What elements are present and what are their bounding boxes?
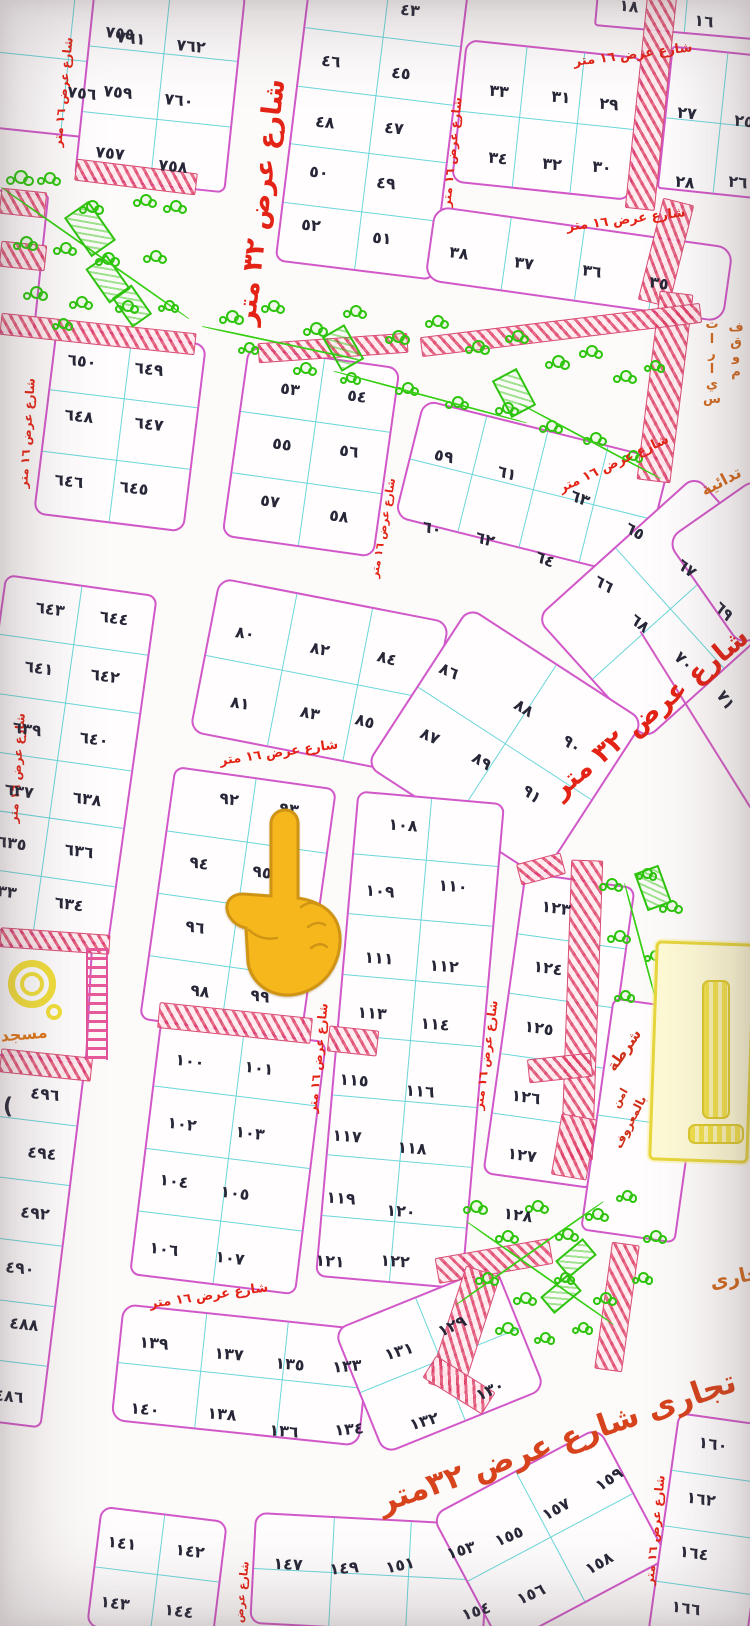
tree-icon xyxy=(480,345,490,355)
area-label: سيارات xyxy=(705,317,720,407)
tree-icon xyxy=(627,994,635,1002)
plot-number: ٥٥ xyxy=(271,433,293,455)
plot-number: ٧٦٠ xyxy=(163,89,194,111)
plot-number: ٥٧ xyxy=(259,490,281,512)
plot-number: ١١٧ xyxy=(332,1126,363,1147)
tree-icon xyxy=(38,291,48,301)
tree-icon xyxy=(534,1337,541,1344)
plot-number: ١١٥ xyxy=(339,1070,370,1091)
tree-icon xyxy=(37,177,45,185)
plot-number: ٦٢ xyxy=(473,527,497,551)
tree-icon xyxy=(608,1297,617,1306)
area-label: تجارى xyxy=(708,1258,750,1294)
plot-number: ١٤٠ xyxy=(130,1398,161,1419)
grid-line xyxy=(500,218,511,289)
plot-number: ١٨ xyxy=(618,0,639,16)
tree-icon xyxy=(585,1326,593,1334)
plot-number: ١٢١ xyxy=(315,1251,346,1272)
plot-number: ١٣٥ xyxy=(275,1353,306,1374)
tree-icon xyxy=(657,364,665,372)
pointing-hand-icon[interactable] xyxy=(225,806,347,1008)
subdivision-map: شارع عرض ١٦ مترشارع عرض ٣٢ مترشارع عرض ١… xyxy=(0,0,750,1626)
street-label: شارع عرض ١٦ متر xyxy=(16,378,38,489)
plot-number: ١٦٦ xyxy=(670,1597,702,1620)
plot-number: ٥٩ xyxy=(432,445,455,468)
tree-icon xyxy=(478,1205,488,1215)
plot-number: ١٤٢ xyxy=(174,1540,205,1562)
plot-number: ٦٣٦ xyxy=(63,840,95,863)
tree-icon xyxy=(52,177,61,186)
plot-number: ١٠٢ xyxy=(166,1113,197,1135)
plot-number: ١١٨ xyxy=(397,1138,428,1159)
plot-number: ٦٤٢ xyxy=(89,665,121,688)
plot-number: ٢٩ xyxy=(598,94,619,115)
tree-icon xyxy=(158,305,165,312)
yellow-building-hall xyxy=(702,980,730,1119)
plot-number: ٦٤٤ xyxy=(98,607,130,630)
tree-icon xyxy=(143,255,151,263)
plot-number: ١٦٤ xyxy=(678,1542,710,1565)
plot-number: ٤٩٠ xyxy=(4,1257,35,1279)
tree-icon xyxy=(628,375,637,384)
plot-number: ١٤٤ xyxy=(163,1600,194,1622)
grid-line xyxy=(460,111,635,130)
plot-number: ١٢٥ xyxy=(523,1017,555,1040)
plot-number: ١٦٠ xyxy=(697,1433,729,1456)
plot-number: ١١٤ xyxy=(420,1014,451,1035)
hatched-street xyxy=(327,1025,379,1056)
plot-number: ٧٦٢ xyxy=(175,35,206,57)
plot-number: ٤٨ xyxy=(314,112,335,133)
plot-number: ٧٥٩ xyxy=(102,81,133,103)
plot-number: ٤٣ xyxy=(399,0,420,20)
plot-number: ٧٥٦ xyxy=(66,82,97,104)
plot-number: ١٠٤ xyxy=(158,1170,189,1192)
grid-line xyxy=(664,1525,750,1539)
plot-number: ١٢٨ xyxy=(502,1204,534,1227)
grid-line xyxy=(0,692,139,714)
grid-line xyxy=(657,1581,750,1595)
tree-icon xyxy=(238,347,245,354)
tree-icon xyxy=(465,346,473,354)
plot-number: ١٠٧ xyxy=(214,1247,245,1269)
plot-number: ٧٥٨ xyxy=(157,155,188,177)
tree-icon xyxy=(614,883,623,892)
plot-number: ٦٣٨ xyxy=(71,788,103,811)
tree-icon xyxy=(594,350,603,359)
tree-icon xyxy=(219,316,227,324)
plot-number: ٦٣٣ xyxy=(0,880,18,903)
grid-line xyxy=(119,1362,364,1389)
tree-icon xyxy=(510,1327,519,1336)
plot-number: ١٢٦ xyxy=(510,1086,542,1109)
grid-line xyxy=(0,1174,69,1186)
plot-number: ٨١ xyxy=(229,692,251,714)
tree-icon xyxy=(148,199,157,208)
mosque-stairs xyxy=(86,948,108,1060)
plot-number: ٦٤٨ xyxy=(63,405,94,427)
plot-number: ٤٩٤ xyxy=(26,1142,57,1164)
plot-number: ١٢٢ xyxy=(380,1251,411,1272)
plot-number: ٤٩٢ xyxy=(19,1202,50,1224)
plot-number: ٩٦ xyxy=(184,916,206,938)
tree-icon xyxy=(65,322,73,330)
plot-number: ٦٣٧ xyxy=(3,780,35,803)
area-label: موقف xyxy=(729,320,744,380)
tree-icon xyxy=(308,367,317,376)
tree-icon xyxy=(572,1327,579,1334)
plot-number: ١١٦ xyxy=(405,1081,436,1102)
plot-number: ٦٣٥ xyxy=(0,832,28,855)
plot-number: ٢٧ xyxy=(676,103,697,124)
plot-number: ٥١ xyxy=(371,228,392,249)
plot-number: ٤٦ xyxy=(320,51,341,72)
tree-icon xyxy=(570,1233,579,1242)
tree-icon xyxy=(425,320,433,328)
plot-number: ٩٨ xyxy=(189,980,211,1002)
plot-number: ٣٢ xyxy=(541,154,562,175)
plot-number: ١٣٧ xyxy=(214,1343,245,1364)
plot-number: ٦٤٥ xyxy=(118,477,149,499)
tree-icon xyxy=(579,350,587,358)
grid-line xyxy=(150,1515,165,1626)
tree-icon xyxy=(520,335,529,344)
plot-number: ٦٤٠ xyxy=(78,728,110,751)
plot-number: ١٠١ xyxy=(243,1057,274,1079)
tree-icon xyxy=(69,301,77,309)
tree-icon xyxy=(629,1194,637,1202)
plot-number: ١٢٠ xyxy=(386,1201,417,1222)
tree-icon xyxy=(632,1277,639,1284)
tree-icon xyxy=(251,346,259,354)
tree-icon xyxy=(613,375,621,383)
plot-number: ٧٥٧ xyxy=(94,142,125,164)
plot-number: ٣٥ xyxy=(648,272,670,294)
mosque-dome-icon xyxy=(20,972,44,996)
plot-number: ٦٤٣ xyxy=(34,598,66,621)
plot-number: ١٠٥ xyxy=(219,1182,250,1204)
plot-number: ٩٤ xyxy=(188,852,210,874)
plot-number: ٣٣ xyxy=(488,81,509,102)
plot-number: ٧٦١ xyxy=(115,27,146,49)
plot-number: ١٣٩ xyxy=(139,1332,170,1353)
tree-icon xyxy=(68,247,77,256)
plot-number: ١٢٤ xyxy=(532,957,564,980)
plot-block xyxy=(33,325,207,532)
plot-number: ١٠٠ xyxy=(174,1050,205,1072)
grid-line xyxy=(405,1522,412,1626)
tree-icon xyxy=(593,1297,601,1305)
area-label: مسجد xyxy=(0,1022,48,1045)
tree-icon xyxy=(178,205,187,214)
plot-number: ١١٢ xyxy=(429,956,460,977)
grid-line xyxy=(510,993,617,1009)
plot-number: ٦٠ xyxy=(420,517,443,540)
tree-icon xyxy=(645,1276,653,1284)
plot-number: ٥٤ xyxy=(346,385,368,407)
grid-line xyxy=(0,1234,62,1246)
tree-icon xyxy=(463,1206,471,1214)
tree-icon xyxy=(540,1205,549,1214)
plot-block xyxy=(221,346,400,558)
plot-number: ١٤٧ xyxy=(273,1554,303,1575)
grid-line xyxy=(684,0,689,32)
street-label: شارع عرض ١٦ متر xyxy=(149,1280,269,1311)
plot-number: ١٠٨ xyxy=(388,815,419,836)
tree-icon xyxy=(343,310,351,318)
plot-number: ٣٧ xyxy=(513,252,535,274)
plot-number: ٨٣ xyxy=(298,702,321,725)
plot-number: ٣٦ xyxy=(581,260,603,282)
area-label: ( xyxy=(3,1095,13,1120)
plot-number: ٢٦ xyxy=(727,172,748,193)
plot-number: ١٠٦ xyxy=(148,1238,179,1260)
park-structure xyxy=(634,865,672,911)
tree-icon xyxy=(53,247,61,255)
tree-icon xyxy=(658,1235,667,1244)
plot-number: ٥٠ xyxy=(308,162,329,183)
tree-icon xyxy=(23,176,34,187)
plot-number: ٣٤ xyxy=(487,148,508,169)
tree-icon xyxy=(84,301,93,310)
plot-number: ٢٥ xyxy=(733,111,750,132)
plot-number: ٤٨٦ xyxy=(0,1385,25,1407)
tree-icon xyxy=(560,360,570,370)
tree-icon xyxy=(545,361,553,369)
plot-number: ٨٠ xyxy=(234,622,256,644)
plot-number: ٥٣ xyxy=(279,378,301,400)
plot-number: ١١٠ xyxy=(438,876,469,897)
plot-number: ٥٦ xyxy=(338,440,360,462)
plot-number: ١٢٣ xyxy=(540,897,572,920)
plot-number: ١٣٣ xyxy=(332,1355,363,1376)
tree-icon xyxy=(674,905,683,914)
tree-icon xyxy=(133,199,141,207)
grid-line xyxy=(0,1355,47,1367)
grid-line xyxy=(672,1470,750,1484)
plot-number: ١٢٧ xyxy=(506,1144,538,1167)
plot-number: ١٤١ xyxy=(106,1532,137,1554)
plot-number: ٥٢ xyxy=(300,215,321,236)
mosque-dome-icon xyxy=(46,1004,62,1020)
plot-number: ٦٤٩ xyxy=(133,358,164,380)
plot-number: ١٣٤ xyxy=(334,1418,365,1439)
yellow-building-base xyxy=(688,1124,744,1144)
plot-number: ٦٤١ xyxy=(23,657,55,680)
plot-number: ٣٠ xyxy=(591,157,612,178)
plot-number: ٢٨ xyxy=(674,172,695,193)
plot-number: ٤٩ xyxy=(375,173,396,194)
tree-icon xyxy=(659,905,667,913)
plot-number: ١٠٣ xyxy=(234,1122,265,1144)
tree-icon xyxy=(510,1235,519,1244)
tree-icon xyxy=(400,335,410,345)
tree-icon xyxy=(513,1297,521,1305)
plot-number: ٨٢ xyxy=(308,638,331,661)
grid-line xyxy=(298,359,325,545)
hatched-street xyxy=(594,1242,640,1373)
plot-number: ٦٤٧ xyxy=(133,413,164,435)
grid-line xyxy=(0,1295,54,1307)
plot-number: ٣١ xyxy=(550,87,571,108)
plot-number: ١٦٢ xyxy=(685,1488,717,1511)
plot-number: ١٤٩ xyxy=(329,1557,360,1578)
tree-icon xyxy=(440,320,449,329)
tree-icon xyxy=(600,1213,609,1222)
plot-number: ١١٣ xyxy=(357,1003,388,1024)
tree-icon xyxy=(528,1297,537,1306)
park-structure xyxy=(540,1274,582,1314)
plot-number: ١١٩ xyxy=(326,1188,357,1209)
plot-number: ٤٥ xyxy=(390,63,411,84)
plot-number: ١٣٨ xyxy=(207,1403,238,1424)
plot-number: ٥٨ xyxy=(328,505,350,527)
tree-icon xyxy=(643,1235,651,1243)
plot-number: ٦٤٦ xyxy=(53,470,84,492)
tree-icon xyxy=(622,935,631,944)
plot-number: ٤٧ xyxy=(383,118,404,139)
tree-icon xyxy=(158,255,167,264)
plot-number: ٧١ xyxy=(713,687,740,714)
plot-number: ١٦ xyxy=(693,11,714,32)
plot-number: ٣٨ xyxy=(448,242,470,264)
plot-number: ٦٣٩ xyxy=(11,718,43,741)
tree-icon xyxy=(547,1336,555,1344)
plot-number: ٦٣٤ xyxy=(53,893,85,916)
plot-number: ١١١ xyxy=(364,948,395,969)
plot-number: ١٣٦ xyxy=(269,1420,300,1441)
plot-number: ١٤٣ xyxy=(99,1592,130,1614)
tree-icon xyxy=(163,205,171,213)
tree-icon xyxy=(6,176,15,185)
tree-icon xyxy=(276,305,285,314)
plot-number: ٤٩٦ xyxy=(29,1083,60,1105)
plot-number: ٤٨٨ xyxy=(8,1313,39,1335)
plot-number: ١٠٩ xyxy=(365,881,396,902)
plot-number: ٦٥٠ xyxy=(66,350,97,372)
tree-icon xyxy=(303,328,311,336)
tree-icon xyxy=(358,310,367,319)
street-label: شارع عرض xyxy=(232,1561,251,1624)
